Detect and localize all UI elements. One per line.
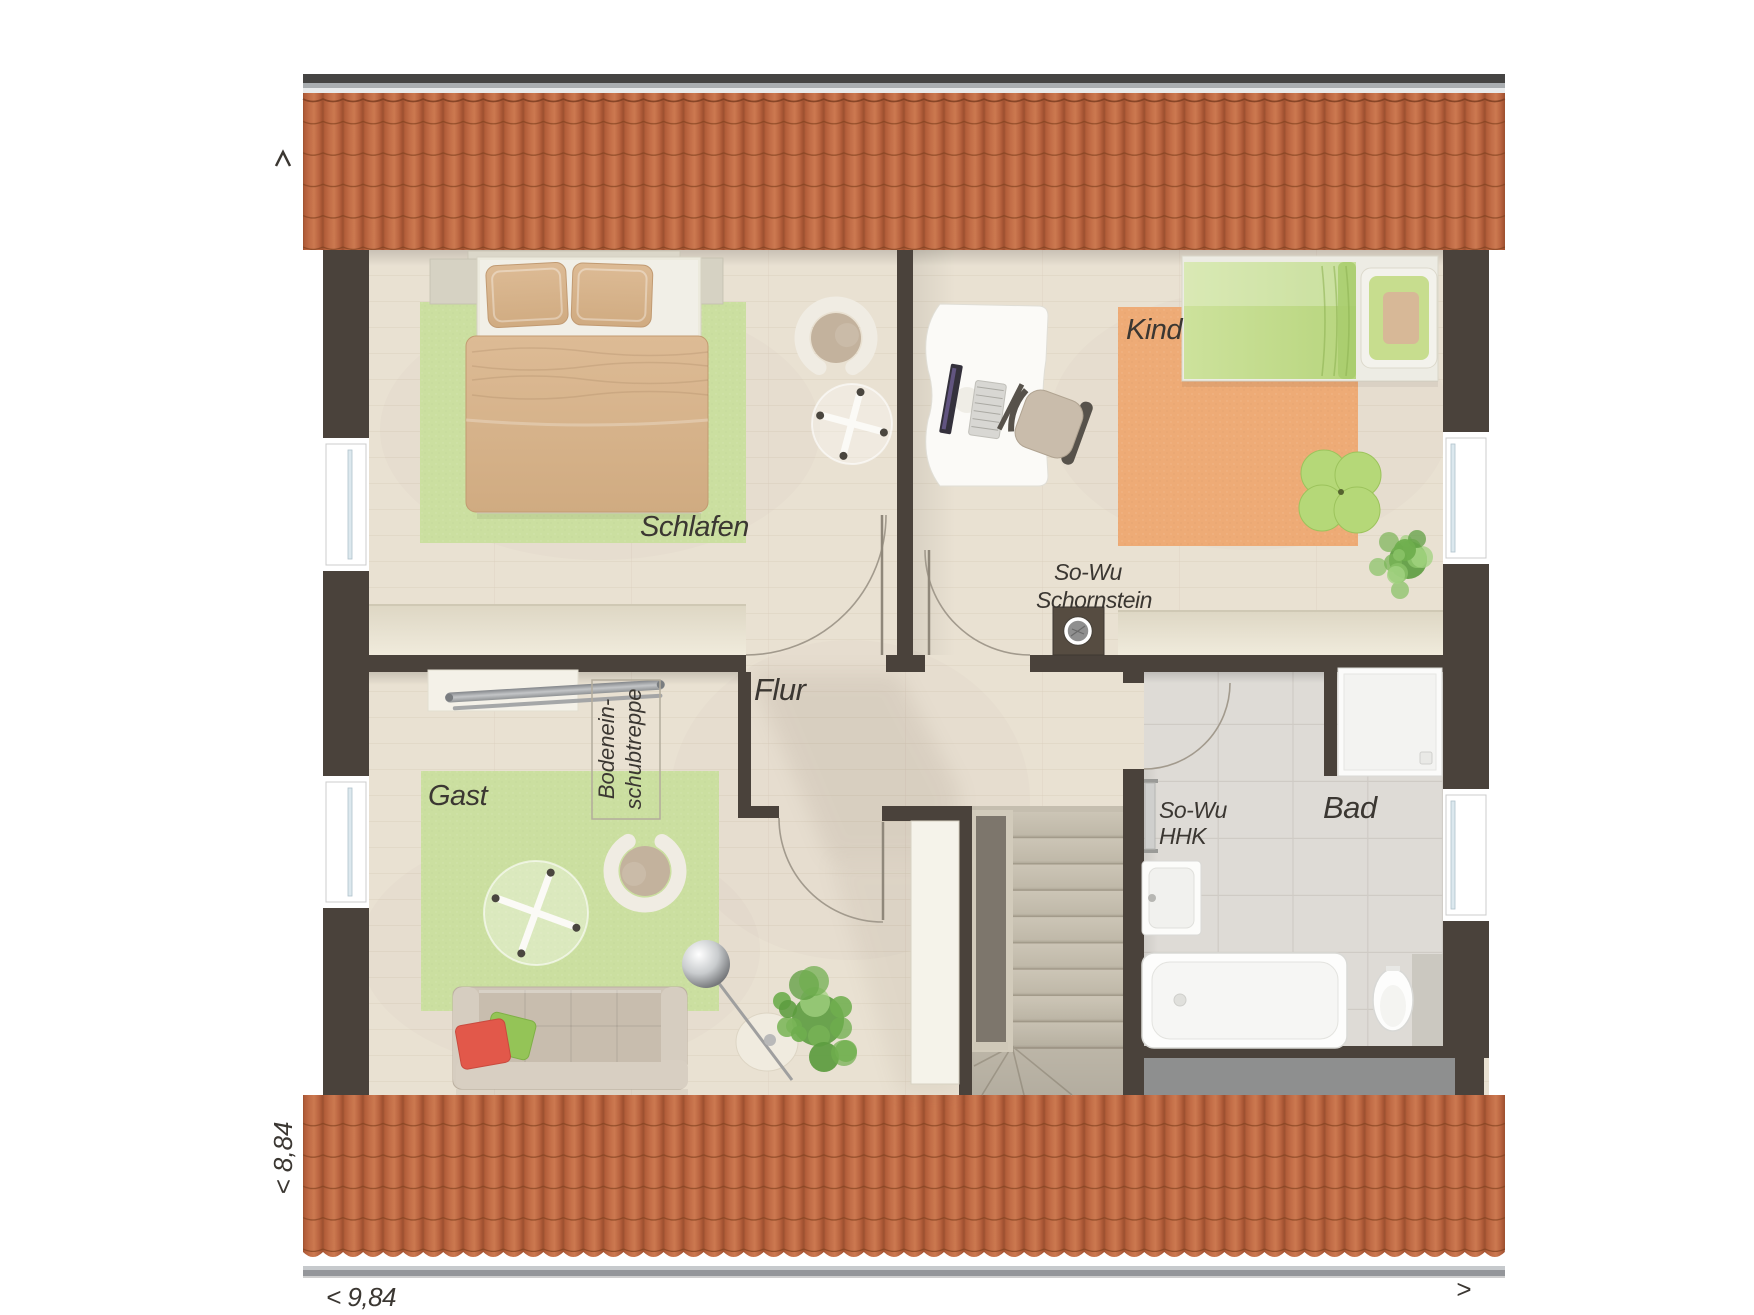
svg-text:< 9,84: < 9,84: [326, 1282, 396, 1312]
svg-text:Kind: Kind: [1126, 314, 1183, 346]
svg-text:Schlafen: Schlafen: [640, 511, 749, 543]
svg-text:< 8,84: < 8,84: [268, 1121, 298, 1194]
svg-text:Bodenein-: Bodenein-: [594, 699, 619, 799]
svg-text:schubtreppe: schubtreppe: [621, 688, 646, 809]
svg-text:>: >: [1456, 1274, 1471, 1304]
svg-text:HHK: HHK: [1159, 823, 1208, 849]
svg-text:Schornstein: Schornstein: [1036, 587, 1152, 613]
svg-text:So-Wu: So-Wu: [1054, 559, 1123, 585]
svg-text:Flur: Flur: [754, 672, 808, 707]
svg-text:Gast: Gast: [428, 780, 490, 812]
svg-text:So-Wu: So-Wu: [1159, 797, 1228, 823]
svg-text:Bad: Bad: [1323, 790, 1379, 825]
